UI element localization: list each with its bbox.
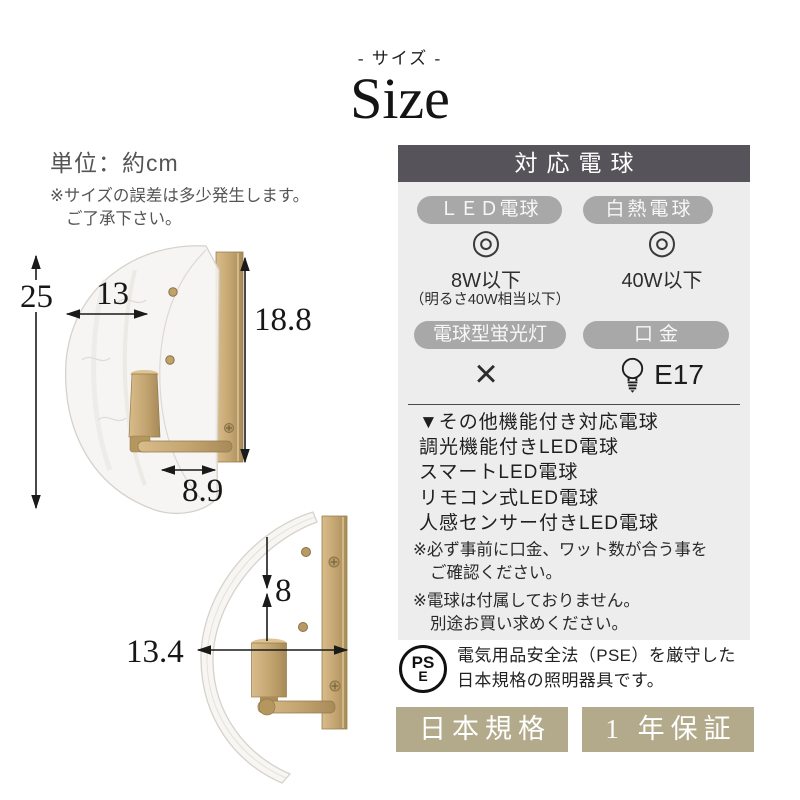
pse-mark-icon: PS E (399, 645, 447, 693)
bulb-icon (620, 357, 645, 394)
other-bulbs-heading: ▼その他機能付き対応電球 (419, 410, 659, 435)
list-item: 調光機能付きLED電球 (419, 435, 659, 460)
unit-label: 単位：約cm (50, 144, 309, 178)
socket-value-row: E17 (574, 355, 750, 395)
double-circle-icon: ◎ (574, 224, 750, 260)
dim-socket-drop: 8 (275, 573, 292, 609)
front-view-diagram: 25 13 18.8 8.9 (20, 240, 395, 530)
led-wattage-note: （明るさ40W相当以下） (398, 288, 582, 309)
japan-standard-badge: 日本規格 (396, 707, 568, 752)
note-bulb-not-included: ※電球は付属しておりません。 別途お買い求めください。 (413, 590, 707, 636)
other-bulbs-list: ▼その他機能付き対応電球 調光機能付きLED電球 スマートLED電球 リモコン式… (419, 410, 659, 536)
double-circle-icon: ◎ (398, 224, 574, 260)
dim-total-depth: 13.4 (126, 634, 184, 670)
incandescent-bulb-label: 白熱電球 (583, 196, 713, 224)
socket-size: E17 (654, 359, 704, 391)
note-check-socket: ※必ず事前に口金、ワット数が合う事を ご確認ください。 (413, 539, 707, 585)
wall-plate (216, 252, 243, 462)
page-title: Size (0, 69, 800, 130)
fluorescent-bulb-label: 電球型蛍光灯 (414, 321, 566, 349)
glass-screw-icon (166, 356, 174, 364)
badge-row: 日本規格 1 年保証 (396, 707, 754, 752)
page-header: - サイズ - Size (0, 44, 800, 130)
dim-shade-width: 13 (96, 276, 129, 312)
socket-type-label: 口金 (583, 321, 729, 349)
glass-screw-icon (302, 548, 311, 557)
glass-screw-icon (169, 288, 177, 296)
cross-icon: × (398, 354, 574, 394)
unit-note: 単位：約cm ※サイズの誤差は多少発生します。 ご了承下さい。 (50, 144, 309, 231)
lamp-arm (138, 441, 232, 452)
size-disclaimer-line2: ご了承下さい。 (50, 208, 309, 231)
panel-notes: ※必ず事前に口金、ワット数が合う事を ご確認ください。 ※電球は付属しておりませ… (413, 539, 707, 636)
wall-plate-side (322, 516, 347, 729)
bulb-compatibility-panel: 対応電球 ＬＥＤ電球 白熱電球 ◎ ◎ 8W以下 （明るさ40W相当以下） 40… (398, 145, 750, 640)
led-bulb-label: ＬＥＤ電球 (417, 196, 562, 224)
incandescent-wattage: 40W以下 (574, 264, 750, 293)
side-view-diagram: 8 13.4 (100, 490, 395, 800)
warranty-badge: 1 年保証 (582, 707, 754, 752)
list-item: 人感センサー付きLED電球 (419, 511, 659, 536)
list-item: リモコン式LED電球 (419, 486, 659, 511)
pse-section: PS E 電気用品安全法（PSE）を厳守した 日本規格の照明器具です。 (399, 644, 751, 693)
glass-screw-icon (299, 623, 308, 632)
divider (408, 404, 740, 405)
dim-plate-height: 18.8 (254, 302, 312, 338)
side-dimensions: 8 13.4 (126, 537, 347, 670)
list-item: スマートLED電球 (419, 460, 659, 485)
pse-text: 電気用品安全法（PSE）を厳守した 日本規格の照明器具です。 (457, 644, 736, 693)
size-infographic-page: - サイズ - Size 単位：約cm ※サイズの誤差は多少発生します。 ご了承… (0, 0, 800, 800)
size-disclaimer-line1: ※サイズの誤差は多少発生します。 (50, 185, 309, 208)
panel-title: 対応電球 (398, 145, 750, 182)
dim-total-height: 25 (20, 279, 53, 315)
